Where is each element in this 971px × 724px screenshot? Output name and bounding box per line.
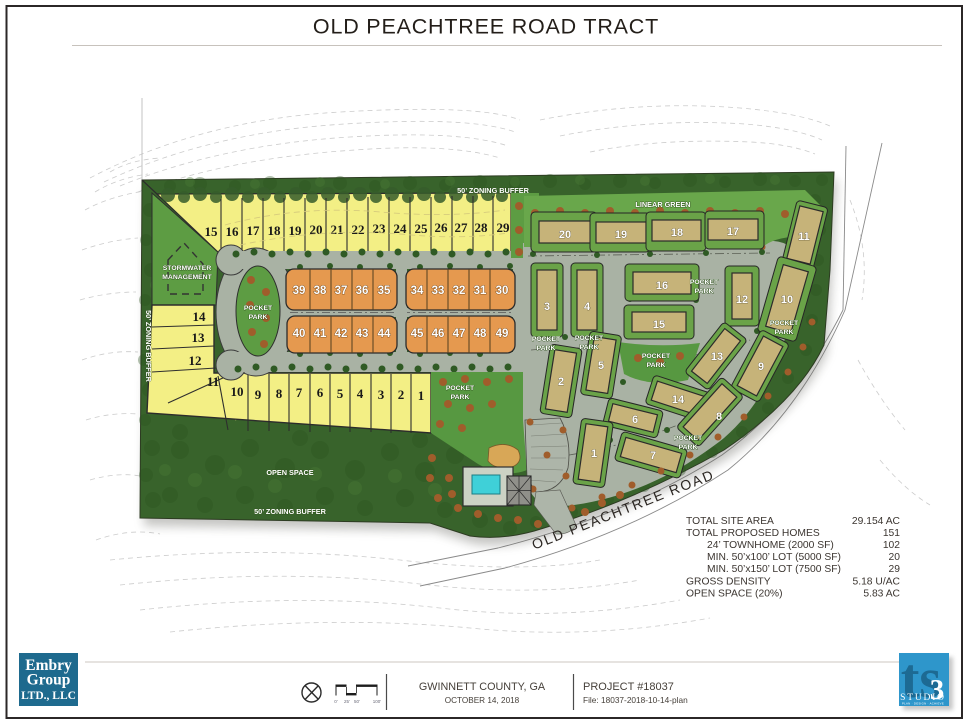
svg-text:3: 3 xyxy=(544,301,550,313)
svg-text:POCKET: POCKET xyxy=(674,435,703,442)
svg-text:PARK: PARK xyxy=(695,288,714,295)
svg-text:5: 5 xyxy=(337,386,344,401)
svg-text:22: 22 xyxy=(352,222,365,237)
svg-text:2: 2 xyxy=(398,387,405,402)
svg-text:PARK: PARK xyxy=(537,345,556,352)
svg-text:38: 38 xyxy=(314,285,327,297)
svg-text:OLD PEACHTREE ROAD TRACT: OLD PEACHTREE ROAD TRACT xyxy=(313,15,659,39)
svg-text:10: 10 xyxy=(231,384,244,399)
svg-text:29: 29 xyxy=(497,220,511,235)
svg-text:40: 40 xyxy=(293,328,306,340)
svg-text:16: 16 xyxy=(656,280,668,292)
svg-text:17: 17 xyxy=(247,223,261,238)
svg-text:33: 33 xyxy=(432,285,445,297)
svg-text:18: 18 xyxy=(268,223,282,238)
svg-text:5.18 U/AC: 5.18 U/AC xyxy=(852,577,900,588)
svg-text:25’: 25’ xyxy=(344,699,350,704)
svg-text:PARK: PARK xyxy=(249,314,268,321)
svg-text:13: 13 xyxy=(711,351,723,363)
svg-text:4: 4 xyxy=(357,386,364,401)
svg-text:POCKET: POCKET xyxy=(244,305,273,312)
svg-text:45: 45 xyxy=(411,328,424,340)
svg-text:0’: 0’ xyxy=(334,699,338,704)
svg-text:50’: 50’ xyxy=(354,699,360,704)
svg-text:50’ ZONING BUFFER: 50’ ZONING BUFFER xyxy=(254,507,326,516)
svg-text:13: 13 xyxy=(192,330,206,345)
svg-text:27: 27 xyxy=(455,220,469,235)
svg-text:MIN. 50’x100’ LOT (5000 SF): MIN. 50’x100’ LOT (5000 SF) xyxy=(707,552,841,563)
svg-text:1: 1 xyxy=(418,388,425,403)
svg-text:5: 5 xyxy=(598,360,604,372)
svg-text:44: 44 xyxy=(378,328,391,340)
svg-text:2: 2 xyxy=(558,376,564,388)
svg-text:42: 42 xyxy=(335,328,348,340)
svg-text:POCKET: POCKET xyxy=(690,279,719,286)
svg-text:POCKET: POCKET xyxy=(575,335,604,342)
svg-text:8: 8 xyxy=(276,386,283,401)
svg-text:TOTAL PROPOSED HOMES: TOTAL PROPOSED HOMES xyxy=(686,528,820,539)
svg-text:151: 151 xyxy=(883,528,900,539)
svg-text:46: 46 xyxy=(432,328,445,340)
svg-text:47: 47 xyxy=(453,328,466,340)
svg-text:PARK: PARK xyxy=(580,344,599,351)
svg-text:PROJECT #18037: PROJECT #18037 xyxy=(583,681,674,693)
svg-text:34: 34 xyxy=(411,285,424,297)
svg-text:48: 48 xyxy=(474,328,487,340)
svg-text:5.83 AC: 5.83 AC xyxy=(863,589,900,600)
svg-text:LTD., LLC: LTD., LLC xyxy=(21,690,76,702)
svg-text:31: 31 xyxy=(474,285,487,297)
svg-text:OCTOBER 14, 2018: OCTOBER 14, 2018 xyxy=(445,696,520,705)
svg-text:21: 21 xyxy=(331,222,344,237)
svg-text:7: 7 xyxy=(296,385,303,400)
svg-text:15: 15 xyxy=(653,319,665,331)
svg-text:20: 20 xyxy=(889,552,901,563)
svg-text:16: 16 xyxy=(226,224,240,239)
svg-text:23: 23 xyxy=(373,221,387,236)
svg-text:36: 36 xyxy=(356,285,369,297)
svg-text:STORMWATER: STORMWATER xyxy=(163,265,212,272)
svg-text:PARK: PARK xyxy=(679,444,698,451)
svg-text:12: 12 xyxy=(189,353,202,368)
svg-text:4: 4 xyxy=(584,301,591,313)
svg-text:TOTAL SITE AREA: TOTAL SITE AREA xyxy=(686,516,774,527)
svg-text:OPEN SPACE (20%): OPEN SPACE (20%) xyxy=(686,589,783,600)
svg-text:Group: Group xyxy=(27,672,71,689)
svg-text:19: 19 xyxy=(615,229,627,241)
svg-text:GROSS DENSITY: GROSS DENSITY xyxy=(686,577,771,588)
svg-text:POCKET: POCKET xyxy=(642,353,671,360)
svg-text:102: 102 xyxy=(883,540,900,551)
svg-text:25: 25 xyxy=(415,221,429,236)
svg-text:35: 35 xyxy=(378,285,391,297)
svg-text:GWINNETT COUNTY, GA: GWINNETT COUNTY, GA xyxy=(419,681,546,693)
svg-text:24’ TOWNHOME (2000 SF): 24’ TOWNHOME (2000 SF) xyxy=(707,540,834,551)
svg-text:MANAGEMENT: MANAGEMENT xyxy=(162,274,212,281)
svg-text:14: 14 xyxy=(193,309,207,324)
svg-text:6: 6 xyxy=(632,414,638,426)
svg-text:PARK: PARK xyxy=(451,394,470,401)
svg-text:14: 14 xyxy=(672,394,685,406)
svg-text:17: 17 xyxy=(727,226,739,238)
svg-text:50’ ZONING BUFFER: 50’ ZONING BUFFER xyxy=(144,310,153,382)
svg-text:20: 20 xyxy=(559,229,571,241)
svg-text:6: 6 xyxy=(317,385,324,400)
svg-text:PARK: PARK xyxy=(775,329,794,336)
svg-text:12: 12 xyxy=(736,294,748,306)
svg-text:OPEN SPACE: OPEN SPACE xyxy=(266,468,313,477)
svg-text:29.154 AC: 29.154 AC xyxy=(852,516,901,527)
svg-text:POCKET: POCKET xyxy=(770,320,799,327)
svg-text:POCKET: POCKET xyxy=(532,336,561,343)
svg-text:26: 26 xyxy=(435,220,449,235)
svg-text:10: 10 xyxy=(781,294,793,306)
svg-text:7: 7 xyxy=(650,450,656,462)
svg-text:18: 18 xyxy=(671,227,683,239)
svg-text:49: 49 xyxy=(496,328,509,340)
svg-text:41: 41 xyxy=(314,328,327,340)
svg-text:28: 28 xyxy=(475,220,489,235)
svg-text:1: 1 xyxy=(591,448,597,460)
svg-text:3: 3 xyxy=(378,387,385,402)
svg-text:9: 9 xyxy=(255,387,262,402)
svg-text:100’: 100’ xyxy=(373,699,382,704)
svg-text:37: 37 xyxy=(335,285,348,297)
svg-text:15: 15 xyxy=(205,224,219,239)
svg-text:8: 8 xyxy=(716,411,722,423)
svg-text:39: 39 xyxy=(293,285,306,297)
svg-text:PARK: PARK xyxy=(647,362,666,369)
svg-text:PLAN · DESIGN · ACHIEVE: PLAN · DESIGN · ACHIEVE xyxy=(902,702,944,706)
svg-text:MIN. 50’x150’ LOT (7500 SF): MIN. 50’x150’ LOT (7500 SF) xyxy=(707,564,841,575)
svg-text:30: 30 xyxy=(496,285,509,297)
svg-text:9: 9 xyxy=(758,361,764,373)
svg-text:File: 18037-2018-10-14-plan: File: 18037-2018-10-14-plan xyxy=(583,695,688,705)
svg-text:11: 11 xyxy=(798,231,810,243)
svg-text:11: 11 xyxy=(207,374,219,389)
svg-text:POCKET: POCKET xyxy=(446,385,475,392)
svg-text:32: 32 xyxy=(453,285,466,297)
svg-text:43: 43 xyxy=(356,328,369,340)
svg-text:LINEAR GREEN: LINEAR GREEN xyxy=(635,200,690,209)
svg-text:29: 29 xyxy=(889,564,901,575)
